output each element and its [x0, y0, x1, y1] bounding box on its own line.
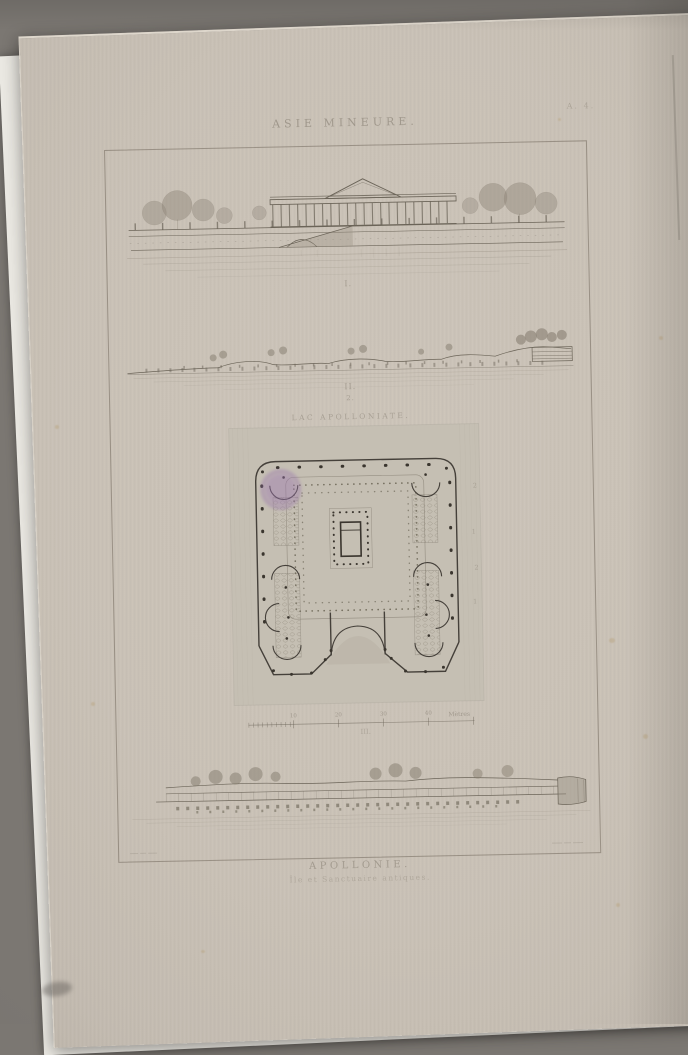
sanctuary-plan-drawing	[229, 424, 485, 706]
scale-tick-label: 30	[376, 711, 390, 717]
engraver-credit-left	[129, 850, 159, 857]
foxing-spot	[609, 638, 615, 643]
scale-bar: 10 20 30 40 Mètres III.	[246, 709, 485, 744]
colonnade	[270, 193, 457, 227]
margin-mark: 1	[472, 528, 476, 536]
scale-tick-label: 40	[421, 710, 435, 716]
margin-mark: 1	[473, 598, 477, 606]
temple-elevation-drawing	[120, 172, 574, 286]
scale-tick-label: 20	[331, 712, 345, 718]
foxing-spot	[91, 702, 95, 706]
margin-mark: 2	[474, 564, 478, 572]
foxing-spot	[558, 118, 561, 121]
margin-mark: 2	[473, 482, 477, 490]
scale-unit-label: Mètres	[448, 711, 470, 718]
foxing-spot	[643, 734, 648, 739]
plate-frame: ASIE MINEURE. A. 4.	[104, 140, 601, 863]
lakeshore-panorama-drawing	[125, 753, 596, 836]
foxing-spot	[201, 950, 205, 953]
foxing-spot	[55, 425, 59, 429]
scale-tick-label: 10	[286, 713, 300, 719]
engraver-credit-right	[551, 839, 585, 846]
plate-mark: A. 4.	[567, 101, 596, 111]
trees	[190, 761, 513, 786]
bridge-ramp	[279, 226, 353, 247]
lake-label: LAC APOLLONIATE.	[110, 407, 591, 426]
wall-block	[532, 347, 572, 362]
trees	[209, 328, 567, 362]
water-reflection	[301, 247, 399, 259]
foxing-spot	[659, 336, 663, 340]
foxing-spot	[616, 903, 620, 907]
round-tower	[558, 776, 587, 804]
